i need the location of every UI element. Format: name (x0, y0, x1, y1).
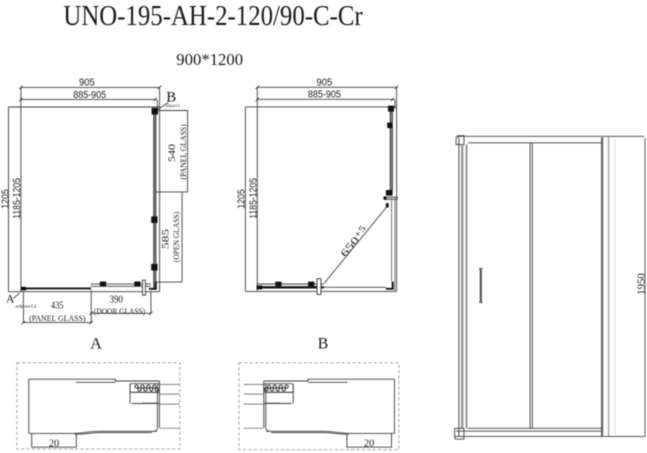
svg-text:(OPEN GLASS): (OPEN GLASS) (171, 212, 181, 263)
svg-text:1205: 1205 (0, 189, 11, 209)
svg-text:1185-1205: 1185-1205 (12, 178, 23, 219)
svg-text:885-905: 885-905 (308, 90, 341, 101)
svg-text:B: B (318, 336, 329, 353)
svg-text:UNO-195-AH-2-120/90-C-Cr: UNO-195-AH-2-120/90-C-Cr (63, 1, 363, 32)
svg-text:(PANEL GLASS): (PANEL GLASS) (29, 313, 86, 323)
svg-text:435: 435 (51, 301, 64, 312)
svg-text:20: 20 (49, 438, 59, 449)
svg-text:1950: 1950 (636, 273, 647, 295)
svg-text:885-905: 885-905 (73, 90, 106, 101)
svg-text:1205: 1205 (237, 189, 248, 209)
svg-text:905: 905 (79, 78, 95, 89)
svg-text:(PANEL GLASS): (PANEL GLASS) (178, 124, 188, 179)
svg-text:905: 905 (317, 77, 333, 88)
svg-text:A: A (6, 293, 15, 305)
svg-text:(DOOR GLASS): (DOOR GLASS) (94, 306, 145, 316)
svg-text:585: 585 (162, 229, 172, 249)
svg-text:20: 20 (364, 438, 374, 449)
svg-text:adjust12: adjust12 (166, 103, 180, 108)
svg-text:390: 390 (110, 294, 124, 305)
svg-text:adjust12: adjust12 (15, 303, 37, 308)
svg-text:A: A (90, 336, 102, 353)
svg-text:540: 540 (168, 144, 178, 162)
svg-text:1185-1205: 1185-1205 (249, 178, 260, 219)
svg-text:900*1200: 900*1200 (176, 50, 243, 69)
